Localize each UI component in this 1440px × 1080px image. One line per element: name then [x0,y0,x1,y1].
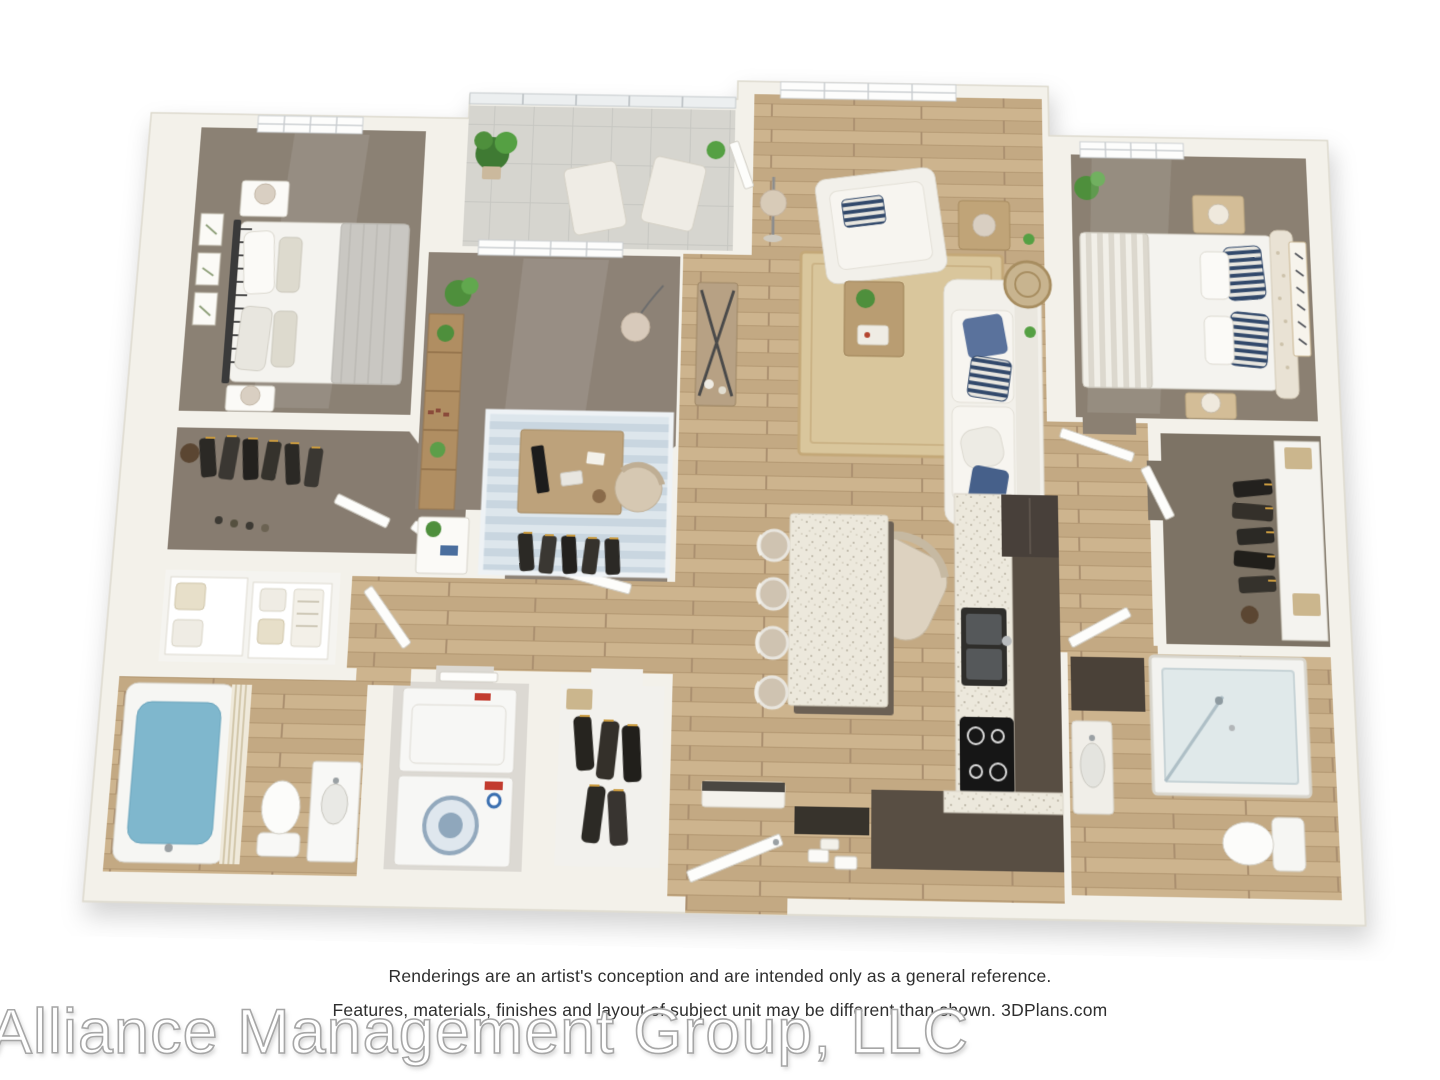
island-countertop [788,514,888,707]
floor-plan-rendering: Renderings are an artist's conception an… [0,0,1440,1080]
coat [607,790,628,847]
clothes [518,532,535,571]
storage-box [1284,447,1312,469]
kitchen-sink [961,607,1012,686]
papers [586,452,605,466]
storage-box [566,689,593,710]
bed-2-blanket [1080,233,1153,389]
clothes [561,535,578,574]
table-lamp [1201,393,1221,413]
dryer-controls [475,693,491,701]
bed-2 [1080,227,1300,399]
pantry-shelf [794,806,869,835]
washer-controls [485,781,503,790]
blue-book [440,545,458,555]
bed-1 [221,220,409,387]
laundry-door [440,672,498,682]
pillow [1200,252,1230,300]
pantry-box [820,839,838,850]
pillow-striped [841,195,886,228]
pantry-box [808,849,828,862]
desk [517,430,623,515]
pillow [1204,316,1234,365]
nightstand-top [240,181,290,217]
coat [573,715,595,771]
dryer [399,688,517,774]
clothes [604,538,620,575]
floor-plan-3d-view [0,3,1440,962]
nightstand-2-top [1192,195,1244,233]
bed-1-blanket [331,223,409,384]
storage-box [1292,593,1321,616]
opening-hall [660,588,682,666]
vanity-2-sink [1072,721,1114,815]
cooktop [960,717,1015,796]
watermark: Alliance Management Group, LLC [0,996,969,1068]
tray [858,325,889,345]
vanity-2-counter [1071,657,1146,712]
sofa [944,279,1045,526]
side-cabinet [415,517,469,574]
countertop [944,791,1063,814]
opening-entry [685,884,787,915]
pillow-striped [1228,311,1269,369]
pillow-blue [962,313,1009,359]
opening-coat [591,668,643,688]
pillow [244,231,275,295]
washer-knob [488,794,501,807]
bathtub-water [126,701,221,844]
nightstand-bottom [225,385,275,411]
bench-top [702,781,785,792]
pillow-striped [967,355,1012,402]
vanity-1 [307,761,362,862]
table-lamp [1208,204,1230,225]
opening-bath1 [356,664,412,686]
table-lamp [973,214,996,237]
pillow [276,237,303,292]
opening-bedroom2 [1083,412,1137,434]
keyboard [560,471,583,486]
pantry-box [835,856,857,869]
coat [622,725,642,783]
planter-pot [482,166,501,179]
balcony-chair [563,160,627,236]
armchair-window [814,166,949,285]
laundry-closet [394,688,517,868]
coffee-table [844,281,904,357]
toilet-tank [1271,817,1306,871]
pillow [271,311,298,367]
console-table [695,282,738,406]
floor-plan-svg [0,3,1440,962]
nightstand-2-bottom [1185,393,1236,419]
counter-run-vertical [954,494,1063,804]
disclaimer-line-1: Renderings are an artist's conception an… [0,966,1440,987]
side-table-top [958,201,1010,251]
sofa-back [1014,288,1040,518]
walk-in-shower [1150,656,1311,797]
